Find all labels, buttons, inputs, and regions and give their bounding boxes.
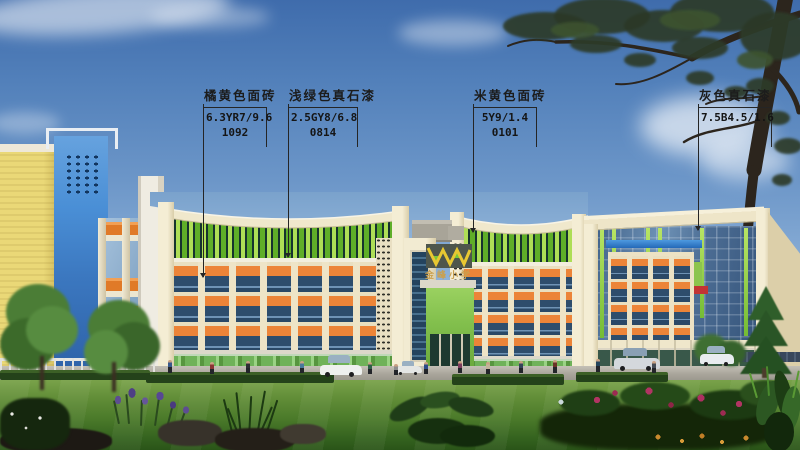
pedestrian bbox=[246, 361, 250, 373]
material-callout: 浅绿色真石漆 2.5GY8/6.8 0814 bbox=[288, 85, 376, 147]
entrance-doors bbox=[430, 334, 470, 368]
callout-leader-line bbox=[698, 104, 699, 230]
blue-bar bbox=[606, 240, 702, 248]
rock bbox=[158, 420, 222, 446]
material-callout: 橘黄色面砖 6.3YR7/9.6 1092 bbox=[203, 85, 277, 147]
material-callout: 灰色真石漆 7.5B4.5/1.6 bbox=[698, 85, 772, 147]
material-callout: 米黄色面砖 5Y9/1.4 0101 bbox=[473, 85, 547, 147]
tower-roof-frame bbox=[46, 128, 118, 149]
pedestrian bbox=[596, 359, 600, 372]
pedestrian bbox=[458, 361, 462, 373]
pedestrian bbox=[394, 364, 398, 375]
callout-leader-line bbox=[288, 104, 289, 257]
cloud bbox=[398, 20, 508, 46]
pedestrian bbox=[300, 361, 304, 373]
corner-foliage-left bbox=[0, 396, 74, 450]
callout-label: 浅绿色真石漆 bbox=[289, 85, 376, 104]
rock bbox=[280, 424, 326, 444]
callout-label: 橘黄色面砖 bbox=[204, 85, 277, 104]
pedestrian bbox=[424, 362, 428, 374]
callout-code: 2.5GY8/6.8 bbox=[291, 110, 355, 125]
car bbox=[700, 344, 734, 366]
foreground-tree bbox=[0, 280, 90, 392]
slotted-pier bbox=[376, 238, 392, 352]
callout-code: 0814 bbox=[291, 125, 355, 140]
callout-leader-line bbox=[203, 104, 204, 277]
callout-code: 6.3YR7/9.6 bbox=[206, 110, 264, 125]
rooftop-equipment bbox=[448, 226, 464, 240]
callout-label: 米黄色面砖 bbox=[474, 85, 547, 104]
pedestrian bbox=[168, 360, 172, 373]
callout-code: 1092 bbox=[206, 125, 264, 140]
pedestrian bbox=[486, 362, 490, 374]
iris-blooms bbox=[100, 388, 200, 418]
yellow-blooms bbox=[636, 428, 776, 448]
callout-leader-line bbox=[473, 104, 474, 232]
inner-window-grid bbox=[608, 252, 694, 346]
logo-panel bbox=[426, 244, 472, 268]
cloud bbox=[150, 6, 270, 28]
architectural-rendering-scene: 金峰小学 bbox=[0, 0, 800, 450]
fern-plant bbox=[385, 390, 495, 450]
callout-code: 5Y9/1.4 bbox=[476, 110, 534, 125]
school-sign: 金峰小学 bbox=[420, 268, 478, 280]
curtain-fin bbox=[600, 228, 604, 338]
corner-foliage-right bbox=[756, 364, 800, 450]
tower-window-dots bbox=[66, 154, 100, 196]
callout-code: 7.5B4.5/1.6 bbox=[701, 110, 769, 125]
magenta-blooms bbox=[553, 384, 778, 428]
pilaster bbox=[584, 224, 598, 372]
foreground-tree bbox=[80, 296, 164, 396]
white-blooms bbox=[4, 406, 54, 442]
entrance-tower: 金峰小学 bbox=[404, 220, 476, 372]
callout-label: 灰色真石漆 bbox=[699, 85, 772, 104]
callout-code: 0101 bbox=[476, 125, 534, 140]
hedge bbox=[146, 372, 334, 383]
pedestrian bbox=[553, 360, 557, 373]
pedestrian bbox=[652, 361, 656, 373]
callout-code-box: 5Y9/1.4 0101 bbox=[473, 107, 537, 147]
pedestrian bbox=[368, 362, 372, 374]
callout-code-box: 2.5GY8/6.8 0814 bbox=[288, 107, 358, 147]
pedestrian bbox=[210, 362, 214, 374]
entrance-canopy bbox=[420, 280, 476, 288]
window-floors bbox=[174, 262, 396, 352]
car bbox=[320, 353, 362, 377]
curved-parapet bbox=[150, 192, 610, 244]
flower-shrub bbox=[540, 378, 780, 450]
pedestrian bbox=[519, 361, 523, 373]
school-logo-w bbox=[426, 244, 472, 268]
callout-code-box: 7.5B4.5/1.6 bbox=[698, 107, 772, 147]
car bbox=[396, 360, 422, 375]
window-floors bbox=[462, 266, 574, 358]
callout-code-box: 6.3YR7/9.6 1092 bbox=[203, 107, 267, 147]
